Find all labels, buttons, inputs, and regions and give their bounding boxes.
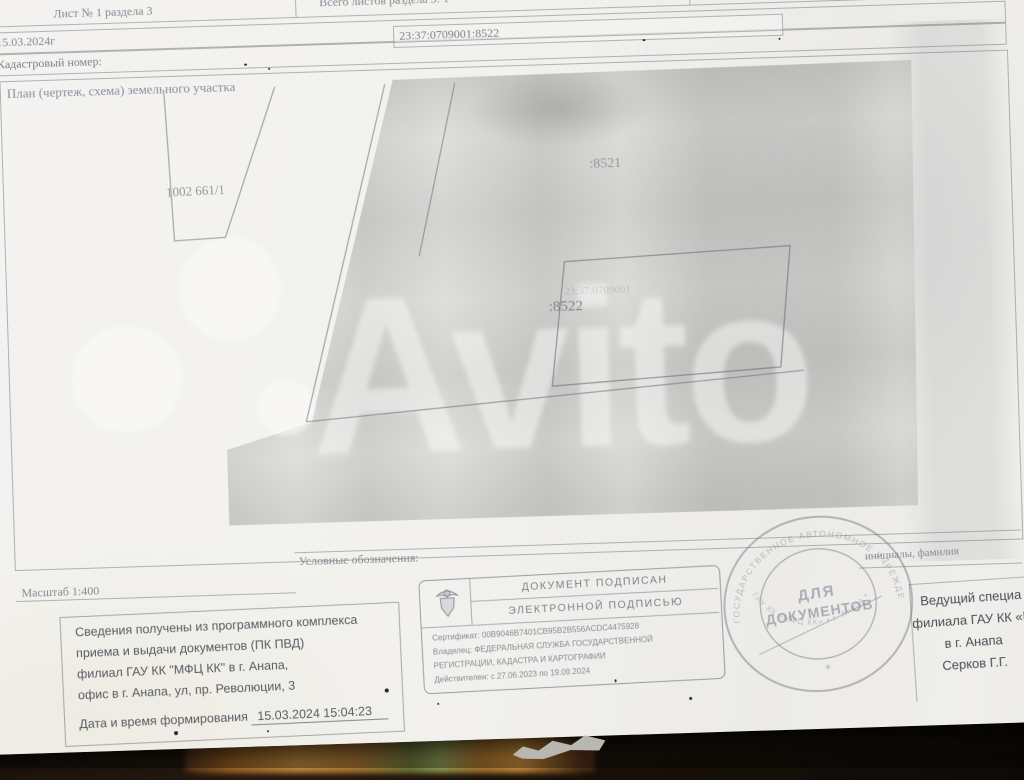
- plan-lines: [0, 51, 1022, 570]
- info-line-2: приема и выдачи документов (ПК ПВД): [76, 636, 305, 660]
- boundary-diagonal-small: [414, 83, 460, 256]
- sheet-number-label: Лист № 1 раздела 3: [53, 4, 153, 22]
- parcel-8521-label: :8521: [589, 156, 621, 173]
- info-line-3: филиал ГАУ КК "МФЦ КК" в г. Анапа,: [77, 658, 289, 682]
- document-sheet: Лист № 1 раздела 3 Всего листов раздела …: [0, 0, 1024, 756]
- speck: [689, 697, 692, 700]
- esign-stamp: ДОКУМЕНТ ПОДПИСАН ЭЛЕКТРОННОЙ ПОДПИСЬЮ С…: [418, 565, 726, 695]
- info-box: Сведения получены из программного компле…: [59, 602, 405, 747]
- document-date: 15.03.2024г: [0, 34, 55, 51]
- coat-of-arms-icon: [431, 583, 463, 623]
- parcel-left-label: 1002 661/1: [166, 182, 226, 201]
- speck: [267, 730, 269, 732]
- speck: [615, 679, 617, 682]
- stamp-star: *: [824, 661, 832, 678]
- esign-title-1: ДОКУМЕНТ ПОДПИСАН: [471, 571, 717, 596]
- header-divider-2: [688, 0, 690, 5]
- esign-title-2: ЭЛЕКТРОННОЙ ПОДПИСЬЮ: [473, 594, 719, 619]
- speck: [268, 68, 270, 70]
- boundary-diagonal-main: [296, 84, 395, 422]
- info-line-4: офис в г. Анапа, ул, пр. Революции, 3: [78, 678, 296, 702]
- info-date-line: Дата и время формирования 15.03.2024 15:…: [79, 703, 388, 731]
- parcel-8522-cadnum-faint: 23:37:0709001: [564, 284, 631, 298]
- signer-block: Ведущий специа филиала ГАУ КК «М в г. Ан…: [909, 576, 1024, 702]
- parcel-8522-outline: [548, 246, 794, 387]
- boundary-left-shape: [164, 87, 280, 241]
- parcel-8522-label: :8522: [549, 298, 584, 316]
- info-date-value: 15.03.2024 15:04:23: [251, 703, 388, 725]
- info-line-1: Сведения получены из программного компле…: [75, 613, 358, 640]
- speck: [437, 703, 439, 705]
- speck: [778, 38, 780, 40]
- document-content: Лист № 1 раздела 3 Всего листов раздела …: [0, 0, 1024, 778]
- legend-label: Условные обозначения:: [298, 550, 418, 569]
- scale-label: Масштаб 1:400: [21, 583, 99, 600]
- boundary-base: [305, 370, 805, 422]
- round-stamp: ГОСУДАРСТВЕННОЕ АВТОНОМНОЕ УЧРЕЖДЕНИЕ ГА…: [708, 499, 930, 709]
- plan-box: Avito 1002 661/1 :8521 23:37:0709001 :85…: [0, 50, 1023, 571]
- info-date-label: Дата и время формирования: [79, 710, 248, 732]
